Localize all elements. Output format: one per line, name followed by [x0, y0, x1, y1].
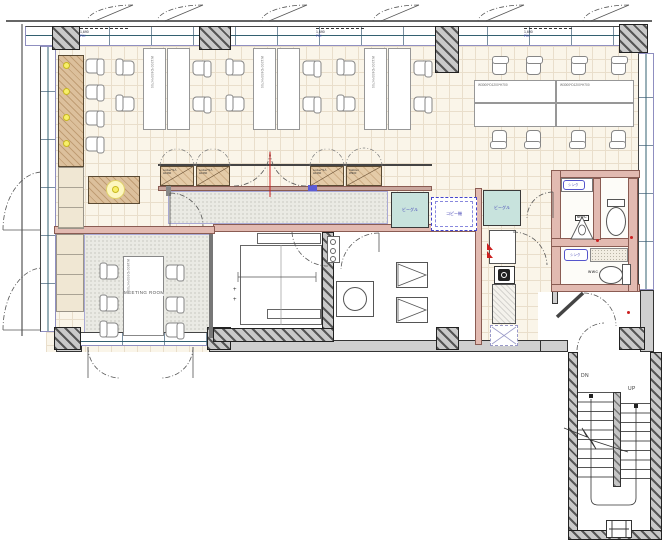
column	[436, 327, 459, 350]
window-fix-text: FIX	[524, 34, 572, 38]
hook-icon	[330, 248, 336, 254]
fridge	[489, 230, 516, 264]
bar-stool	[86, 85, 102, 100]
kitchen-sink-unit	[490, 325, 518, 346]
elevator-door-bottom	[267, 309, 321, 319]
window-fix-text: FIX	[316, 34, 364, 38]
meeting-side-cabinet	[56, 234, 84, 312]
desk-dim-label: W1200*D600*H700	[371, 56, 375, 118]
bar-stool	[86, 59, 102, 74]
stair-west-wall	[568, 352, 578, 540]
column	[199, 26, 231, 50]
wc-stall-wall	[593, 178, 601, 240]
column	[619, 24, 648, 53]
cabinet: Cabinet W900	[346, 166, 382, 186]
desk	[556, 103, 634, 127]
meeting-chair	[103, 265, 119, 280]
appliance-drum-icon	[343, 287, 367, 311]
stair-east-wall	[650, 352, 662, 540]
office-chair	[340, 97, 356, 112]
column	[52, 26, 80, 50]
meeting-room-label: MEETING ROOM	[124, 291, 164, 296]
elevator-door-top	[257, 233, 321, 244]
awning-swing-arcs	[87, 5, 629, 21]
mens-toilet-bowl	[606, 207, 626, 236]
kitchen-counter	[492, 284, 516, 324]
window-dim-annotation: 1,690 FIX	[80, 28, 128, 38]
desk-dim-label: W1200*D600*H700	[150, 56, 154, 118]
office-chair	[193, 61, 209, 76]
bar-counter	[58, 55, 84, 167]
shaft-south-wall	[213, 328, 334, 342]
wall-device-marker	[308, 185, 317, 191]
meeting-chair	[166, 265, 182, 280]
pendant-light-icon	[112, 186, 119, 193]
locker: Locker*9人 H1060	[196, 166, 230, 186]
office-chair	[526, 59, 541, 75]
pendant-light-icon	[63, 114, 70, 121]
storage-rack	[396, 297, 428, 323]
copier: コピー機	[431, 197, 477, 231]
womens-toilet-tank	[622, 264, 631, 285]
walk-line-start	[634, 404, 638, 408]
pendant-light-icon	[63, 62, 70, 69]
bar-stool	[86, 111, 102, 126]
womens-vanity-counter	[590, 248, 628, 262]
level-mark: +	[233, 287, 237, 294]
office-chair	[571, 59, 586, 75]
desk-dim-label: W3000*D1200*H700	[560, 84, 590, 88]
meeting-chair	[103, 323, 119, 338]
mens-toilet-cistern	[607, 199, 625, 207]
cabinet-width-label: W900	[349, 171, 356, 175]
meeting-east-wall	[209, 234, 213, 338]
office-chair	[611, 130, 626, 146]
pendant-light-icon	[63, 88, 70, 95]
womens-wc-label: WWC	[588, 271, 598, 275]
office-chair	[611, 59, 626, 75]
desk	[167, 48, 190, 130]
shelf-cabinet: ビーグル	[391, 192, 429, 228]
window-fix-text: FIX	[80, 34, 128, 38]
pendant-light-icon	[63, 140, 70, 147]
office-chair	[119, 97, 135, 112]
office-chair	[414, 61, 430, 76]
wc-west-wall	[551, 170, 561, 292]
office-chair	[492, 59, 507, 75]
column	[435, 26, 459, 73]
shelf-cabinet-label: ビーグル	[402, 208, 418, 213]
door-stop-marker	[627, 311, 630, 314]
desk	[474, 103, 556, 127]
mens-sink-label: シンク	[568, 183, 579, 187]
office-chair	[492, 130, 507, 146]
stair-lower-door	[606, 520, 632, 538]
stove-burner-ring	[501, 272, 507, 278]
desk	[253, 48, 276, 130]
womens-toilet-bowl	[599, 266, 623, 284]
door-stop-marker	[596, 239, 599, 242]
bar-stool	[86, 137, 102, 152]
locker-height-label: H1060	[163, 171, 171, 175]
corridor-west-stub	[166, 186, 171, 196]
stair-treads-up	[621, 403, 650, 479]
locker-height-label: H1060	[313, 171, 321, 175]
hook-icon	[330, 256, 336, 262]
west-window-wall	[40, 46, 56, 332]
wc-north-wall	[551, 170, 640, 178]
column	[54, 327, 81, 350]
corridor-floor	[168, 191, 388, 224]
east-window-wall	[638, 53, 654, 290]
stair-up-label: UP	[628, 387, 636, 393]
left-eave-line	[21, 24, 23, 336]
floor-plan: シンク MWC シンク WWC W1200*D600*H700 W1200*D6…	[0, 0, 662, 540]
shelf-cabinet-label: ビーグル	[494, 206, 510, 211]
office-chair	[303, 97, 319, 112]
walk-line-start	[589, 394, 593, 398]
locker: Locker*9人 H1060	[310, 166, 344, 186]
locker-height-label: H1060	[199, 171, 207, 175]
urinal-label: MWC	[575, 215, 589, 221]
low-cabinet	[58, 167, 84, 229]
hook-icon	[330, 239, 336, 245]
shelf-cabinet: ビーグル	[483, 190, 521, 226]
wc-south-wall	[551, 284, 640, 292]
vestibule-corner-wall	[540, 340, 568, 352]
column	[619, 327, 645, 350]
office-chair	[229, 97, 245, 112]
office-chair	[526, 130, 541, 146]
office-chair	[340, 61, 356, 76]
stair-treads-down	[578, 392, 613, 479]
stair-center-wall	[613, 392, 621, 487]
storage-rack	[396, 262, 428, 288]
office-chair	[119, 61, 135, 76]
desk-dim-label: W3000*D1200*H700	[478, 84, 508, 88]
meeting-chair	[103, 297, 119, 312]
office-chair	[414, 97, 430, 112]
office-chair	[571, 130, 586, 146]
corridor-north-sill	[158, 186, 432, 191]
window-dim-annotation: 1,690 FIX	[316, 28, 364, 38]
stair-down-label: DN	[581, 374, 589, 380]
locker: Locker*9人 H1060	[160, 166, 194, 186]
desk	[388, 48, 411, 130]
office-chair	[303, 61, 319, 76]
meeting-chair	[166, 323, 182, 338]
desk-dim-label: W1200*D600*H700	[260, 56, 264, 118]
awning-leaf-lines	[95, 5, 629, 21]
womens-sink-label: シンク	[570, 253, 581, 257]
office-chair	[193, 97, 209, 112]
window-dim-annotation: 1,690 FIX	[524, 28, 572, 38]
desk	[143, 48, 166, 130]
door-stop-marker	[630, 236, 633, 239]
level-mark: +	[233, 297, 237, 304]
desk	[364, 48, 387, 130]
canopy-line	[6, 20, 652, 22]
desk	[277, 48, 300, 130]
office-chair	[229, 61, 245, 76]
meeting-chair	[166, 297, 182, 312]
